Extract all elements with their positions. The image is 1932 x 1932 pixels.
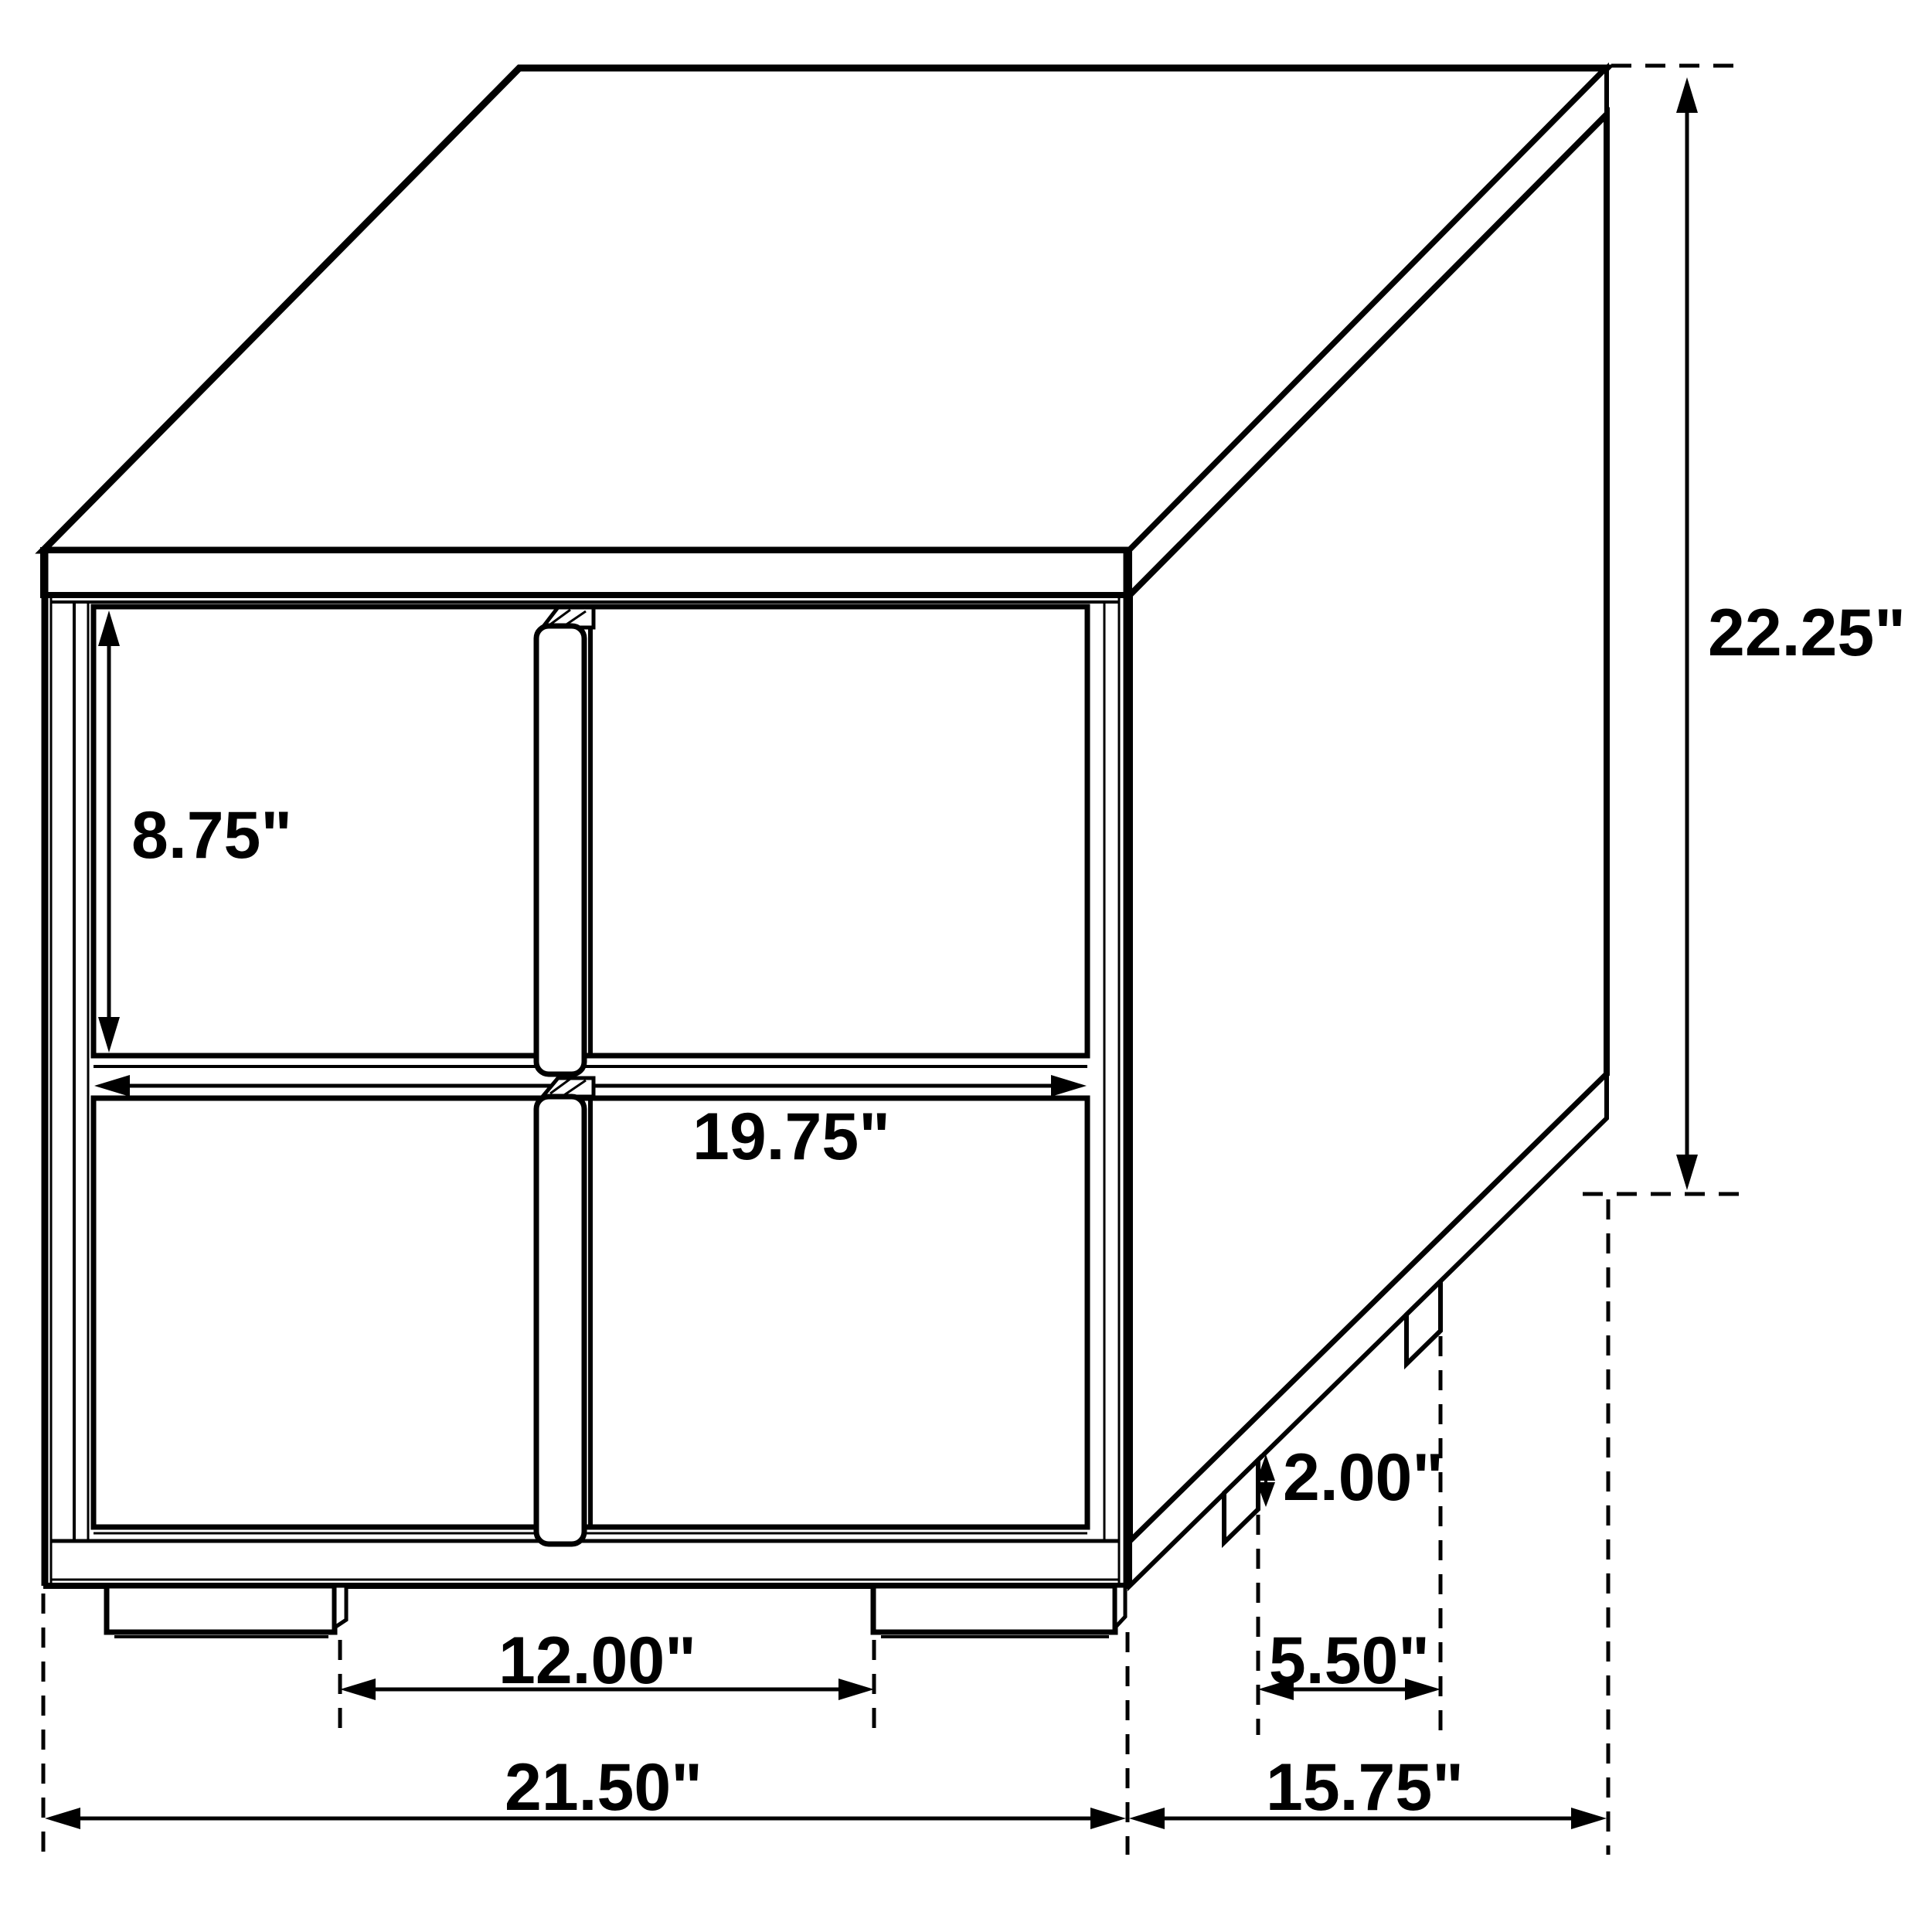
- front-foot-left-bevel: [335, 1586, 346, 1628]
- label-side-feet-gap: 5.50": [1269, 1624, 1430, 1698]
- label-overall-depth: 15.75": [1266, 1750, 1464, 1825]
- label-drawer-width: 19.75": [692, 1100, 890, 1174]
- label-overall-width: 21.50": [505, 1750, 702, 1825]
- label-side-foot-height: 2.00": [1283, 1440, 1444, 1515]
- dimension-diagram: 8.75" 19.75" 22.25" 2.00" 12.00" 5.50" 2…: [0, 0, 1932, 1932]
- label-front-feet-gap: 12.00": [498, 1624, 696, 1698]
- nightstand-drawing: 8.75" 19.75" 22.25" 2.00" 12.00" 5.50" 2…: [0, 0, 1932, 1932]
- label-drawer-height: 8.75": [131, 798, 292, 872]
- label-overall-height: 22.25": [1708, 596, 1906, 670]
- front-foot-right: [873, 1586, 1115, 1632]
- top-drawer-pull-handle: [536, 626, 584, 1074]
- bottom-drawer-pull-handle: [536, 1097, 584, 1544]
- front-foot-left: [107, 1586, 335, 1632]
- tabletop-front-edge: [43, 550, 1130, 595]
